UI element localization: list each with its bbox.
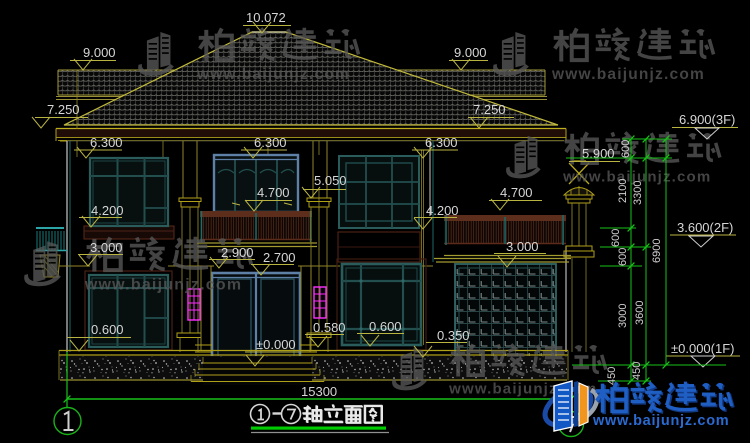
- svg-text:600: 600: [610, 229, 622, 247]
- svg-text:3300: 3300: [632, 181, 644, 205]
- svg-text:5.050: 5.050: [314, 173, 347, 188]
- svg-text:5.900: 5.900: [582, 146, 615, 161]
- svg-text:6.900(3F): 6.900(3F): [679, 112, 735, 127]
- svg-text:0.600: 0.600: [369, 319, 402, 334]
- svg-text:0.580: 0.580: [313, 320, 346, 335]
- svg-text:2100: 2100: [617, 179, 629, 203]
- svg-text:2.700: 2.700: [263, 250, 296, 265]
- svg-text:4.200: 4.200: [426, 203, 459, 218]
- svg-text:3.600(2F): 3.600(2F): [677, 220, 733, 235]
- svg-text:www.baijunjz.com: www.baijunjz.com: [592, 413, 729, 429]
- svg-text:6.300: 6.300: [425, 135, 458, 150]
- svg-text:3.000: 3.000: [506, 239, 539, 254]
- svg-text:4.700: 4.700: [500, 185, 533, 200]
- svg-text:10.072: 10.072: [246, 10, 286, 25]
- svg-text:600: 600: [617, 248, 629, 266]
- svg-text:7.250: 7.250: [473, 102, 506, 117]
- svg-text:0.600: 0.600: [91, 322, 124, 337]
- svg-text:6900: 6900: [651, 239, 663, 263]
- svg-text:600: 600: [620, 140, 632, 158]
- svg-text:9.000: 9.000: [83, 45, 116, 60]
- svg-text:3000: 3000: [617, 304, 629, 328]
- svg-text:2.900: 2.900: [221, 245, 254, 260]
- svg-text:6.300: 6.300: [254, 135, 287, 150]
- svg-text:4.200: 4.200: [91, 203, 124, 218]
- svg-text:9.000: 9.000: [454, 45, 487, 60]
- svg-text:15300: 15300: [301, 384, 337, 399]
- svg-text:3600: 3600: [634, 301, 646, 325]
- svg-text:450: 450: [631, 362, 643, 380]
- svg-text:4.700: 4.700: [257, 185, 290, 200]
- svg-text:0.350: 0.350: [437, 328, 470, 343]
- svg-text:±0.000: ±0.000: [256, 337, 296, 352]
- svg-text:±0.000(1F): ±0.000(1F): [671, 341, 735, 356]
- svg-text:3.000: 3.000: [90, 240, 123, 255]
- svg-text:7.250: 7.250: [47, 102, 80, 117]
